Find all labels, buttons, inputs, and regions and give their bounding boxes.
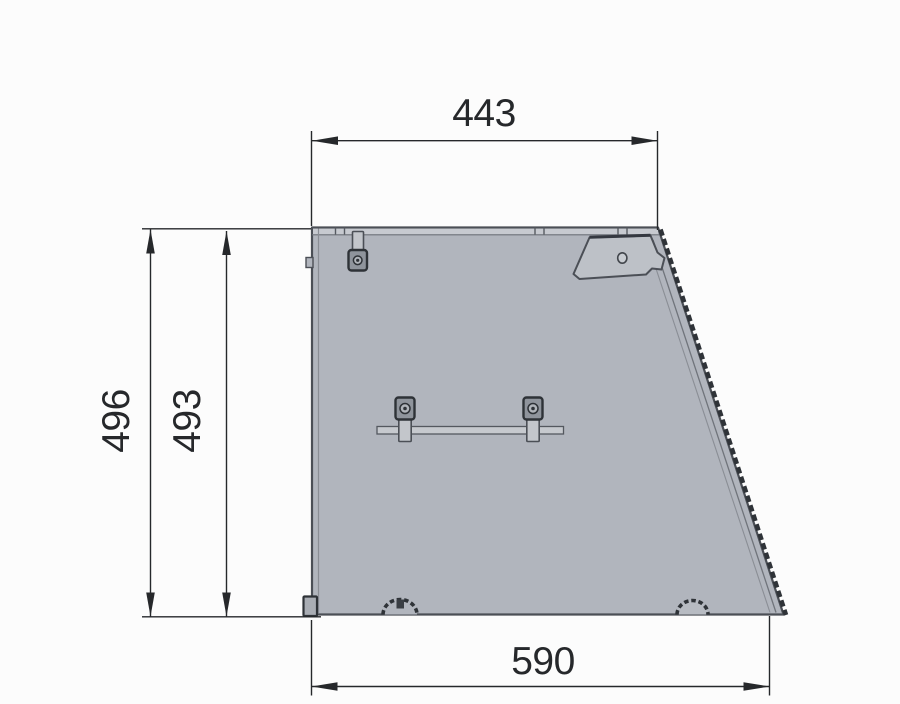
- panel-top-band: [313, 229, 658, 235]
- rail-stud-right: [524, 398, 543, 442]
- dim-label-bottom-width: 590: [483, 641, 603, 683]
- dim-label-inner-height: 493: [167, 361, 209, 481]
- arrowhead-right: [632, 136, 658, 145]
- technical-drawing-canvas: 443 496 493 590: [0, 0, 900, 704]
- arrowhead-left: [312, 682, 338, 691]
- rail-stud-left: [396, 398, 415, 442]
- rail-stud-right-hole-center: [531, 407, 535, 411]
- corner-flap-top-edge: [590, 235, 651, 237]
- arrowhead-left: [312, 136, 338, 145]
- dim-label-top-width: 443: [424, 93, 544, 135]
- arrowhead-up: [146, 230, 155, 254]
- arrowhead-up: [222, 231, 231, 255]
- rail-stud-left-hole-center: [403, 407, 407, 411]
- dimension-top-width: [312, 131, 658, 230]
- panel-left-edge-notch: [306, 258, 313, 268]
- bottom-grommet-left-plug: [397, 600, 405, 609]
- arrowhead-down: [222, 593, 231, 617]
- arrowhead-down: [146, 593, 155, 617]
- bottom-left-foot-tab: [304, 597, 318, 617]
- arrowhead-right: [744, 682, 770, 691]
- corner-flap-hole: [618, 253, 627, 263]
- dim-label-overall-height: 496: [96, 361, 138, 481]
- panel: [306, 228, 784, 615]
- stud-top-left-hole-center: [356, 259, 359, 262]
